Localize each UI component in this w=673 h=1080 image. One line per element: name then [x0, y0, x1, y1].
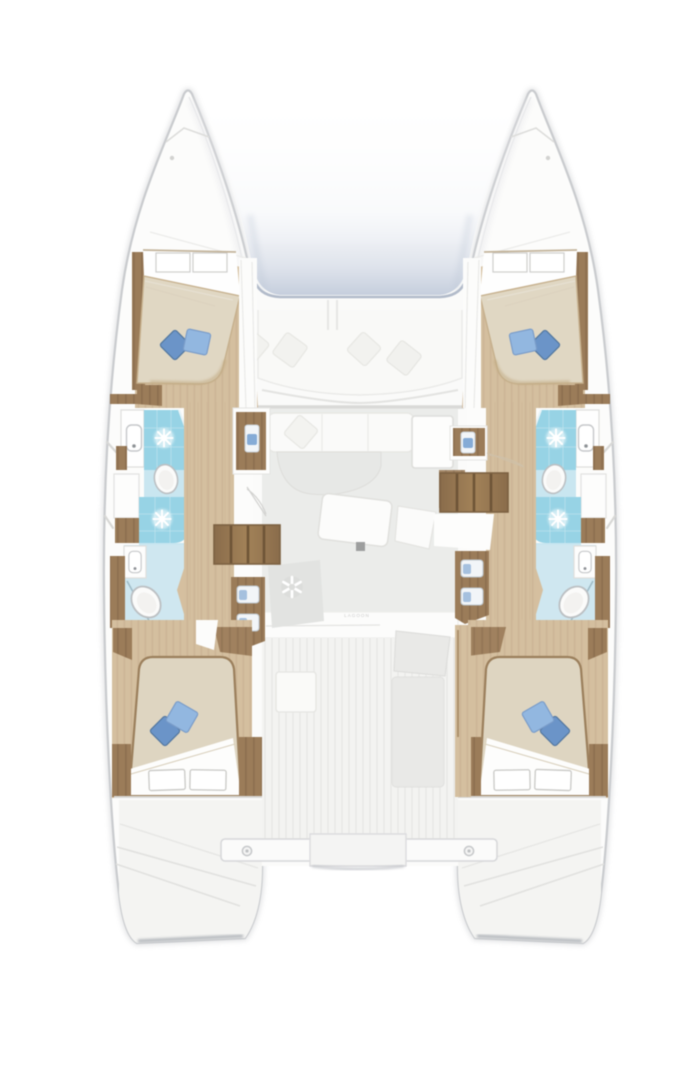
svg-text:LAGOON: LAGOON — [344, 613, 370, 618]
